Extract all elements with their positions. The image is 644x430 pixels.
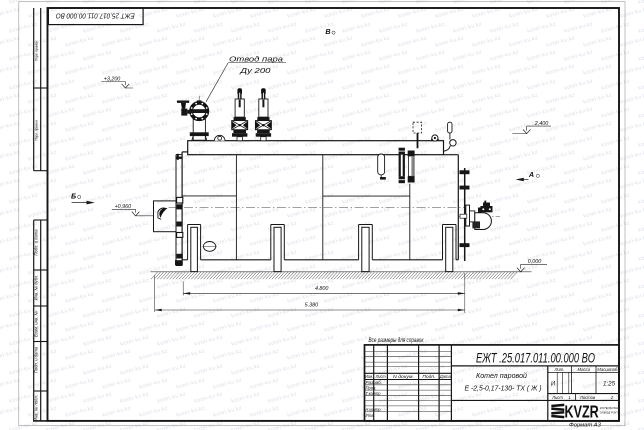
svg-text:Утв.: Утв. bbox=[366, 413, 375, 419]
svg-text:2: 2 bbox=[610, 395, 614, 400]
svg-text:ЕЖТ 25.017.011.00.000 ВО: ЕЖТ 25.017.011.00.000 ВО bbox=[56, 11, 135, 20]
svg-text:Ду 200: Ду 200 bbox=[239, 66, 271, 75]
svg-text:Перв. примен.: Перв. примен. bbox=[35, 119, 39, 140]
svg-text:Лит.: Лит. bbox=[553, 367, 564, 372]
svg-text:N докум.: N докум. bbox=[393, 374, 414, 379]
svg-text:Н.контр: Н.контр bbox=[366, 407, 381, 413]
svg-text:Пров.: Пров. bbox=[366, 386, 377, 392]
svg-text:Масса: Масса bbox=[577, 367, 590, 372]
svg-text:1: 1 bbox=[568, 395, 570, 400]
svg-text:Подп. и дата: Подп. и дата bbox=[34, 229, 39, 256]
svg-text:Взам. инв. №: Взам. инв. № bbox=[34, 311, 39, 337]
svg-text:Инв. № дубл.: Инв. № дубл. bbox=[34, 275, 39, 301]
svg-text:Отвод пара: Отвод пара bbox=[229, 54, 283, 63]
svg-text:KVZR: KVZR bbox=[565, 402, 599, 422]
svg-text:Разраб.: Разраб. bbox=[366, 380, 383, 386]
svg-text:Листов: Листов bbox=[579, 395, 596, 400]
svg-text:Лист: Лист bbox=[375, 374, 386, 379]
svg-text:Котел паровой: Котел паровой bbox=[476, 371, 527, 380]
svg-text:Подп. и дата: Подп. и дата bbox=[34, 346, 39, 373]
svg-text:ЕЖТ .25.017.011.00.000 ВО: ЕЖТ .25.017.011.00.000 ВО bbox=[476, 351, 595, 366]
svg-text:Формат А3: Формат А3 bbox=[569, 423, 601, 429]
svg-text:Изм.: Изм. bbox=[365, 374, 373, 379]
svg-text:Лист: Лист bbox=[551, 395, 563, 400]
svg-text:КОТЕЛЬНЫЙ: КОТЕЛЬНЫЙ bbox=[600, 406, 620, 410]
svg-text:Инв. № подл.: Инв. № подл. bbox=[34, 395, 39, 421]
svg-text:И: И bbox=[551, 382, 556, 388]
svg-text:Т.контр: Т.контр bbox=[366, 391, 381, 397]
svg-text:Масштаб: Масштаб bbox=[597, 367, 618, 372]
svg-text:Дата: Дата bbox=[439, 374, 451, 379]
svg-text:ЗАВОД РЭП: ЗАВОД РЭП bbox=[600, 410, 619, 414]
svg-text:Подп.: Подп. bbox=[422, 374, 435, 379]
svg-text:4.800: 4.800 bbox=[315, 286, 329, 292]
svg-text:В: В bbox=[325, 27, 330, 36]
svg-text:5.380: 5.380 bbox=[305, 303, 319, 309]
svg-text:Е -2,5-0,17-130- ТХ ( Ж ): Е -2,5-0,17-130- ТХ ( Ж ) bbox=[465, 385, 542, 392]
svg-text:Все размеры для справок: Все размеры для справок bbox=[369, 338, 425, 344]
svg-text:Б: Б bbox=[71, 191, 76, 200]
svg-text:Перв. примен.: Перв. примен. bbox=[35, 40, 39, 61]
svg-text:1:25: 1:25 bbox=[603, 381, 616, 388]
svg-text:А: А bbox=[528, 170, 534, 179]
